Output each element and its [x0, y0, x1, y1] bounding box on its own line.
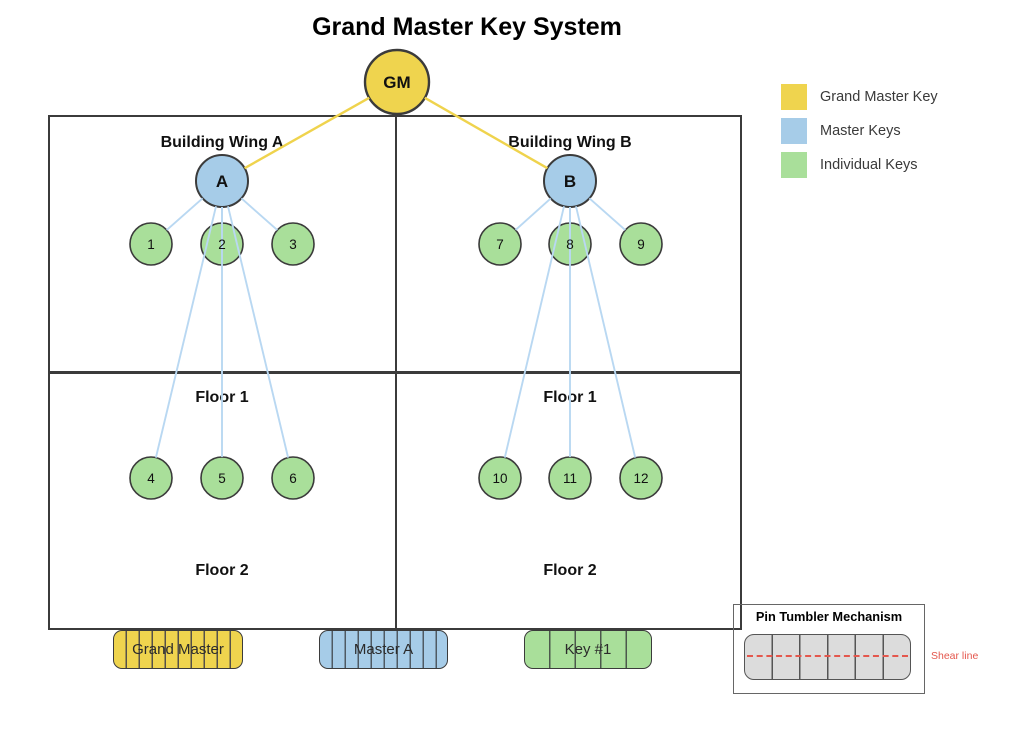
- pin-tumbler-pins: [744, 634, 911, 680]
- legend-item-individual: Individual Keys: [781, 152, 918, 178]
- key-grand-master-label: Grand Master: [132, 641, 224, 658]
- key-master-a: Master A: [319, 630, 448, 669]
- key-individual-1: Key #1: [524, 630, 652, 669]
- legend-label: Grand Master Key: [820, 89, 938, 105]
- legend-label: Master Keys: [820, 123, 901, 139]
- pin-tumbler-title: Pin Tumbler Mechanism: [733, 609, 925, 624]
- legend-swatch-individual: [781, 152, 807, 178]
- section-label-wing-a: Building Wing A: [122, 134, 322, 152]
- shear-line: [747, 655, 908, 657]
- page-title: Grand Master Key System: [67, 13, 867, 42]
- gm-node-label: GM: [383, 73, 410, 92]
- key-grand-master: Grand Master: [113, 630, 243, 669]
- key-individual-1-label: Key #1: [565, 641, 612, 658]
- section-label-floor1-right: Floor 1: [470, 389, 670, 407]
- section-label-floor2-right: Floor 2: [470, 562, 670, 580]
- legend-label: Individual Keys: [820, 157, 918, 173]
- grid-horizontal-divider: [48, 371, 742, 374]
- grand-master-key-diagram: Grand Master Key System Building Wing A …: [0, 0, 1024, 747]
- shear-line-label: Shear line: [931, 650, 978, 662]
- section-label-floor1-left: Floor 1: [122, 389, 322, 407]
- legend-item-master: Master Keys: [781, 118, 901, 144]
- legend-swatch-master: [781, 118, 807, 144]
- key-master-a-label: Master A: [354, 641, 413, 658]
- legend-swatch-grand-master: [781, 84, 807, 110]
- gm-node: [365, 50, 429, 114]
- section-label-wing-b: Building Wing B: [470, 134, 670, 152]
- section-label-floor2-left: Floor 2: [122, 562, 322, 580]
- legend-item-grand-master: Grand Master Key: [781, 84, 938, 110]
